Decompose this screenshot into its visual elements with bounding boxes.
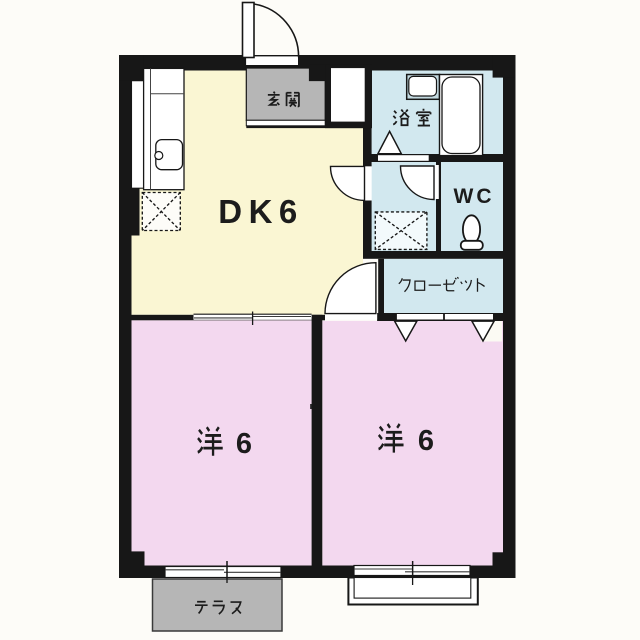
svg-text:DK6: DK6 [218, 193, 304, 230]
svg-text:6: 6 [418, 425, 434, 457]
svg-text:6: 6 [236, 428, 252, 460]
svg-text:WC: WC [454, 185, 495, 208]
